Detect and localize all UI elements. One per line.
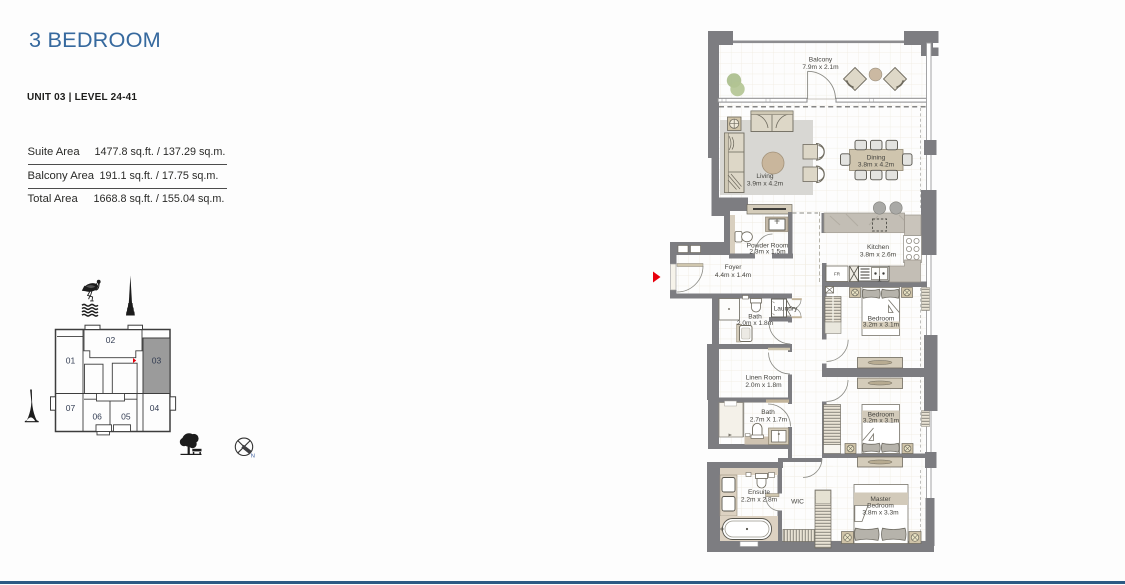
svg-text:05: 05 (121, 412, 131, 422)
svg-text:02: 02 (106, 335, 116, 345)
svg-text:Ensuite: Ensuite (748, 489, 770, 496)
svg-text:Foyer: Foyer (725, 264, 743, 271)
svg-text:Laundry: Laundry (774, 306, 799, 313)
svg-text:01: 01 (66, 356, 76, 366)
svg-text:3.8m x 2.6m: 3.8m x 2.6m (860, 252, 897, 259)
svg-text:3.8m x 3.3m: 3.8m x 3.3m (862, 509, 899, 516)
svg-text:04: 04 (150, 403, 160, 413)
svg-text:3.9m x 4.2m: 3.9m x 4.2m (747, 180, 784, 187)
svg-text:7.9m x 2.1m: 7.9m x 2.1m (802, 64, 839, 71)
svg-text:4.4m x 1.4m: 4.4m x 1.4m (715, 272, 752, 279)
svg-text:Balcony: Balcony (809, 57, 833, 64)
svg-text:N: N (251, 454, 255, 460)
svg-text:2.2m x 2.8m: 2.2m x 2.8m (741, 497, 778, 504)
svg-text:06: 06 (92, 412, 102, 422)
svg-text:FR: FR (834, 272, 841, 277)
svg-text:2.0m x 1.8m: 2.0m x 1.8m (745, 382, 782, 389)
svg-text:WIC: WIC (791, 499, 804, 506)
svg-text:3.8m x 4.2m: 3.8m x 4.2m (858, 162, 895, 169)
svg-text:3.2m x 3.1m: 3.2m x 3.1m (863, 322, 900, 329)
svg-text:2.7m X 1.7m: 2.7m X 1.7m (750, 417, 788, 424)
svg-text:Kitchen: Kitchen (867, 244, 889, 251)
svg-text:3.2m x 3.1m: 3.2m x 3.1m (863, 418, 900, 425)
svg-text:Linen Room: Linen Room (746, 375, 782, 382)
svg-text:2.0m x 1.8m: 2.0m x 1.8m (737, 320, 774, 327)
svg-text:Living: Living (756, 173, 774, 180)
svg-text:07: 07 (66, 403, 76, 413)
svg-text:Dining: Dining (867, 154, 886, 161)
svg-text:03: 03 (152, 356, 162, 366)
svg-text:2.3m x 1.5m: 2.3m x 1.5m (749, 249, 786, 256)
svg-text:Bath: Bath (761, 409, 775, 416)
